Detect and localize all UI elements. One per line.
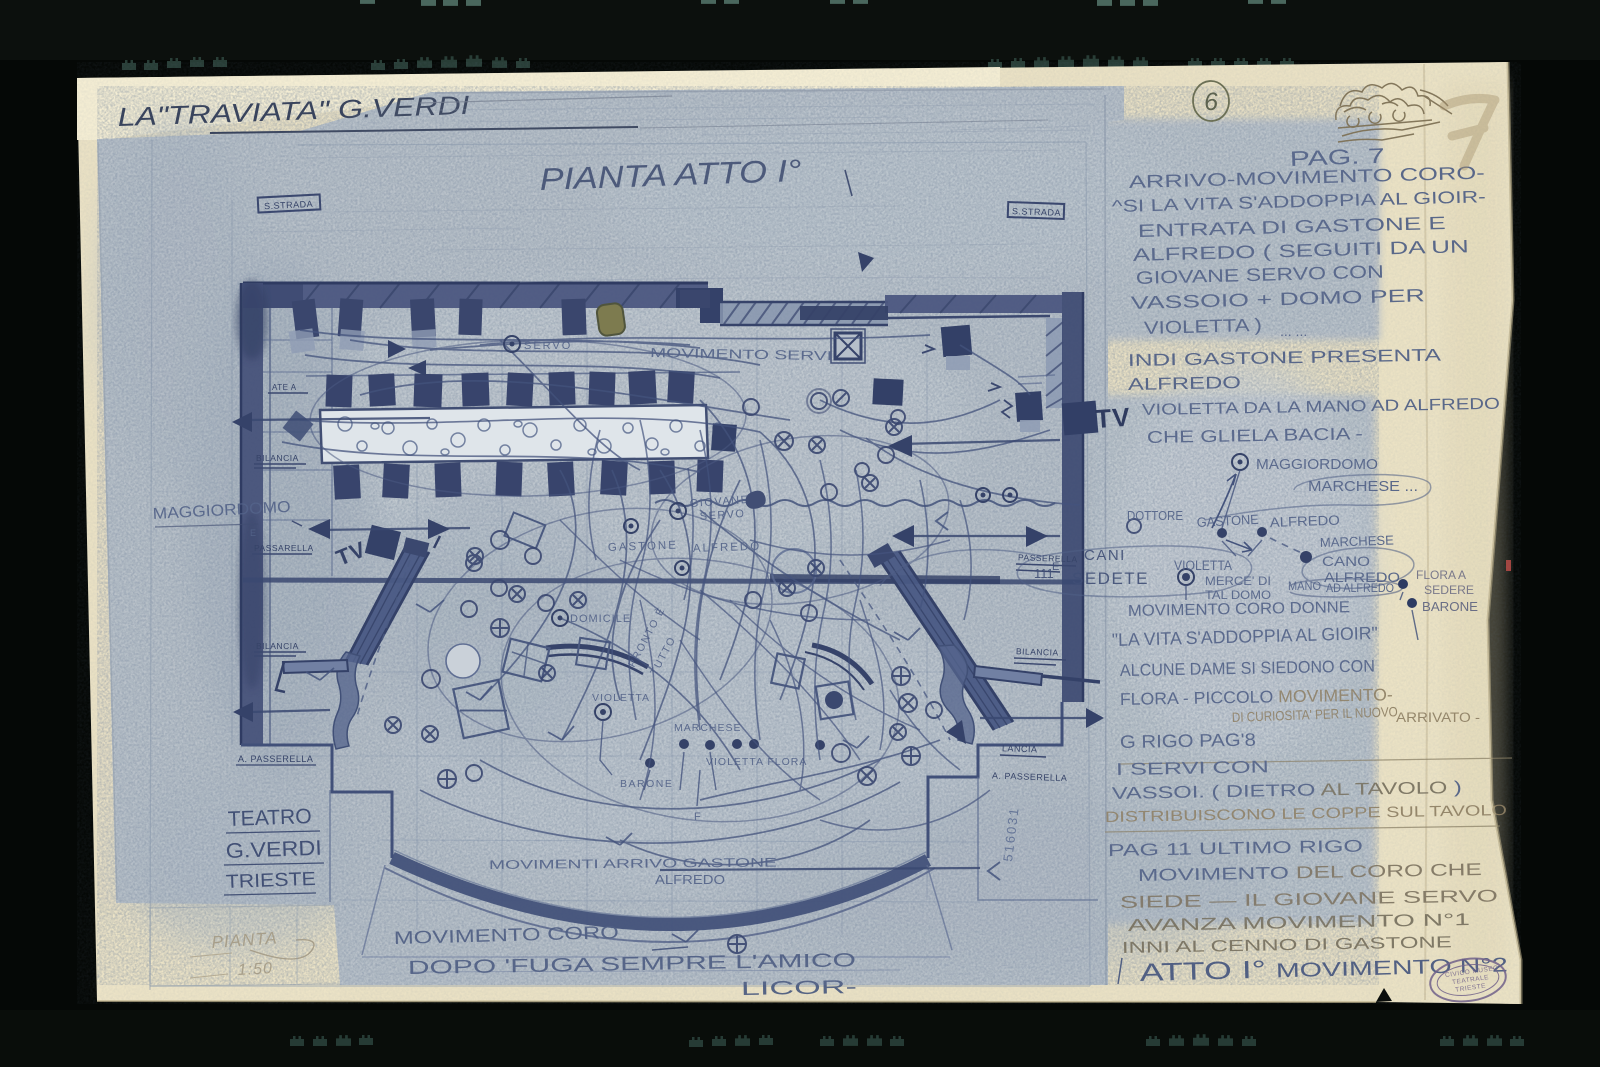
- svg-text:1:50: 1:50: [237, 960, 273, 979]
- svg-text:ALFREDO: ALFREDO: [1128, 373, 1241, 394]
- svg-text:FLORA A: FLORA A: [1416, 568, 1466, 582]
- svg-text:6: 6: [1203, 88, 1219, 117]
- svg-text:BARONE: BARONE: [1422, 600, 1478, 614]
- svg-text:ARRIVATO -: ARRIVATO -: [1396, 710, 1480, 725]
- svg-text:SEDERE: SEDERE: [1424, 583, 1474, 597]
